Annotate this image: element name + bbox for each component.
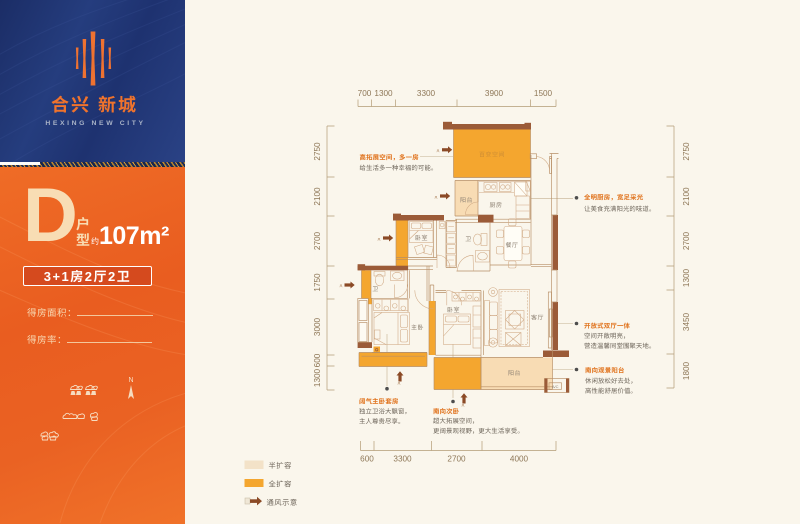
svg-text:600: 600 <box>313 353 322 367</box>
svg-text:2100: 2100 <box>313 187 322 206</box>
svg-text:2750: 2750 <box>682 142 691 161</box>
svg-text:客厅: 客厅 <box>531 312 544 321</box>
svg-text:半扩容: 半扩容 <box>269 461 292 471</box>
svg-text:休闲放松好去处，: 休闲放松好去处， <box>585 376 637 385</box>
svg-text:全扩容: 全扩容 <box>269 480 292 490</box>
svg-text:1500: 1500 <box>534 89 553 98</box>
svg-text:A/C: A/C <box>552 384 559 389</box>
svg-text:南向次卧: 南向次卧 <box>433 406 460 415</box>
svg-text:风: 风 <box>398 382 401 386</box>
svg-text:厨房: 厨房 <box>489 200 502 209</box>
svg-text:风: 风 <box>378 238 381 242</box>
svg-text:卧室: 卧室 <box>415 233 428 242</box>
svg-text:3450: 3450 <box>682 312 691 331</box>
svg-text:1750: 1750 <box>313 273 322 292</box>
svg-text:给生活多一种幸福的可能。: 给生活多一种幸福的可能。 <box>360 163 438 172</box>
svg-text:2700: 2700 <box>313 231 322 250</box>
svg-text:全明厨房，宽足采光: 全明厨房，宽足采光 <box>584 192 644 201</box>
svg-text:通风示意: 通风示意 <box>267 498 298 508</box>
svg-text:4000: 4000 <box>510 455 529 464</box>
svg-text:高性能舒居价值。: 高性能舒居价值。 <box>585 386 637 395</box>
svg-text:风: 风 <box>435 196 438 200</box>
svg-text:2700: 2700 <box>682 231 691 250</box>
svg-text:风: 风 <box>462 404 465 408</box>
svg-text:卫: 卫 <box>372 284 379 293</box>
svg-text:餐厅: 餐厅 <box>505 240 518 249</box>
svg-text:开放式双厅一体: 开放式双厅一体 <box>584 321 631 330</box>
svg-text:高拓展空间，多一房: 高拓展空间，多一房 <box>360 153 419 162</box>
svg-text:更阔景观视野，更大生活享受。: 更阔景观视野，更大生活享受。 <box>433 426 524 435</box>
svg-text:空间开敞明亮，: 空间开敞明亮， <box>584 331 629 340</box>
svg-text:3000: 3000 <box>313 317 322 336</box>
svg-text:主卧: 主卧 <box>411 322 424 331</box>
svg-text:阳台: 阳台 <box>508 368 521 377</box>
svg-text:南向观景阳台: 南向观景阳台 <box>585 366 625 375</box>
svg-text:3300: 3300 <box>417 89 436 98</box>
svg-text:卧室: 卧室 <box>447 305 460 314</box>
svg-text:3900: 3900 <box>485 89 504 98</box>
svg-text:1300: 1300 <box>682 268 691 287</box>
svg-text:超大拓展空间，: 超大拓展空间， <box>433 416 478 425</box>
svg-text:风: 风 <box>340 284 343 288</box>
svg-text:卫: 卫 <box>465 234 472 243</box>
svg-text:2700: 2700 <box>447 455 466 464</box>
svg-text:3300: 3300 <box>393 455 412 464</box>
svg-text:2750: 2750 <box>313 142 322 161</box>
svg-text:600: 600 <box>360 455 374 464</box>
svg-text:1300: 1300 <box>374 89 393 98</box>
svg-text:风: 风 <box>437 149 440 153</box>
svg-text:阔气主卧套房: 阔气主卧套房 <box>359 396 399 405</box>
svg-text:营造温馨同堂围聚天地。: 营造温馨同堂围聚天地。 <box>584 341 655 350</box>
svg-text:独立卫浴大飘窗，: 独立卫浴大飘窗， <box>359 406 411 415</box>
svg-text:百变空间: 百变空间 <box>479 149 505 158</box>
svg-text:阳台: 阳台 <box>460 195 473 204</box>
svg-text:让美食充满阳光的味道。: 让美食充满阳光的味道。 <box>584 204 655 213</box>
svg-text:700: 700 <box>358 89 372 98</box>
svg-text:1300: 1300 <box>313 368 322 387</box>
svg-text:主人尊贵尽享。: 主人尊贵尽享。 <box>359 416 404 425</box>
svg-text:1800: 1800 <box>682 361 691 380</box>
svg-text:2100: 2100 <box>682 187 691 206</box>
